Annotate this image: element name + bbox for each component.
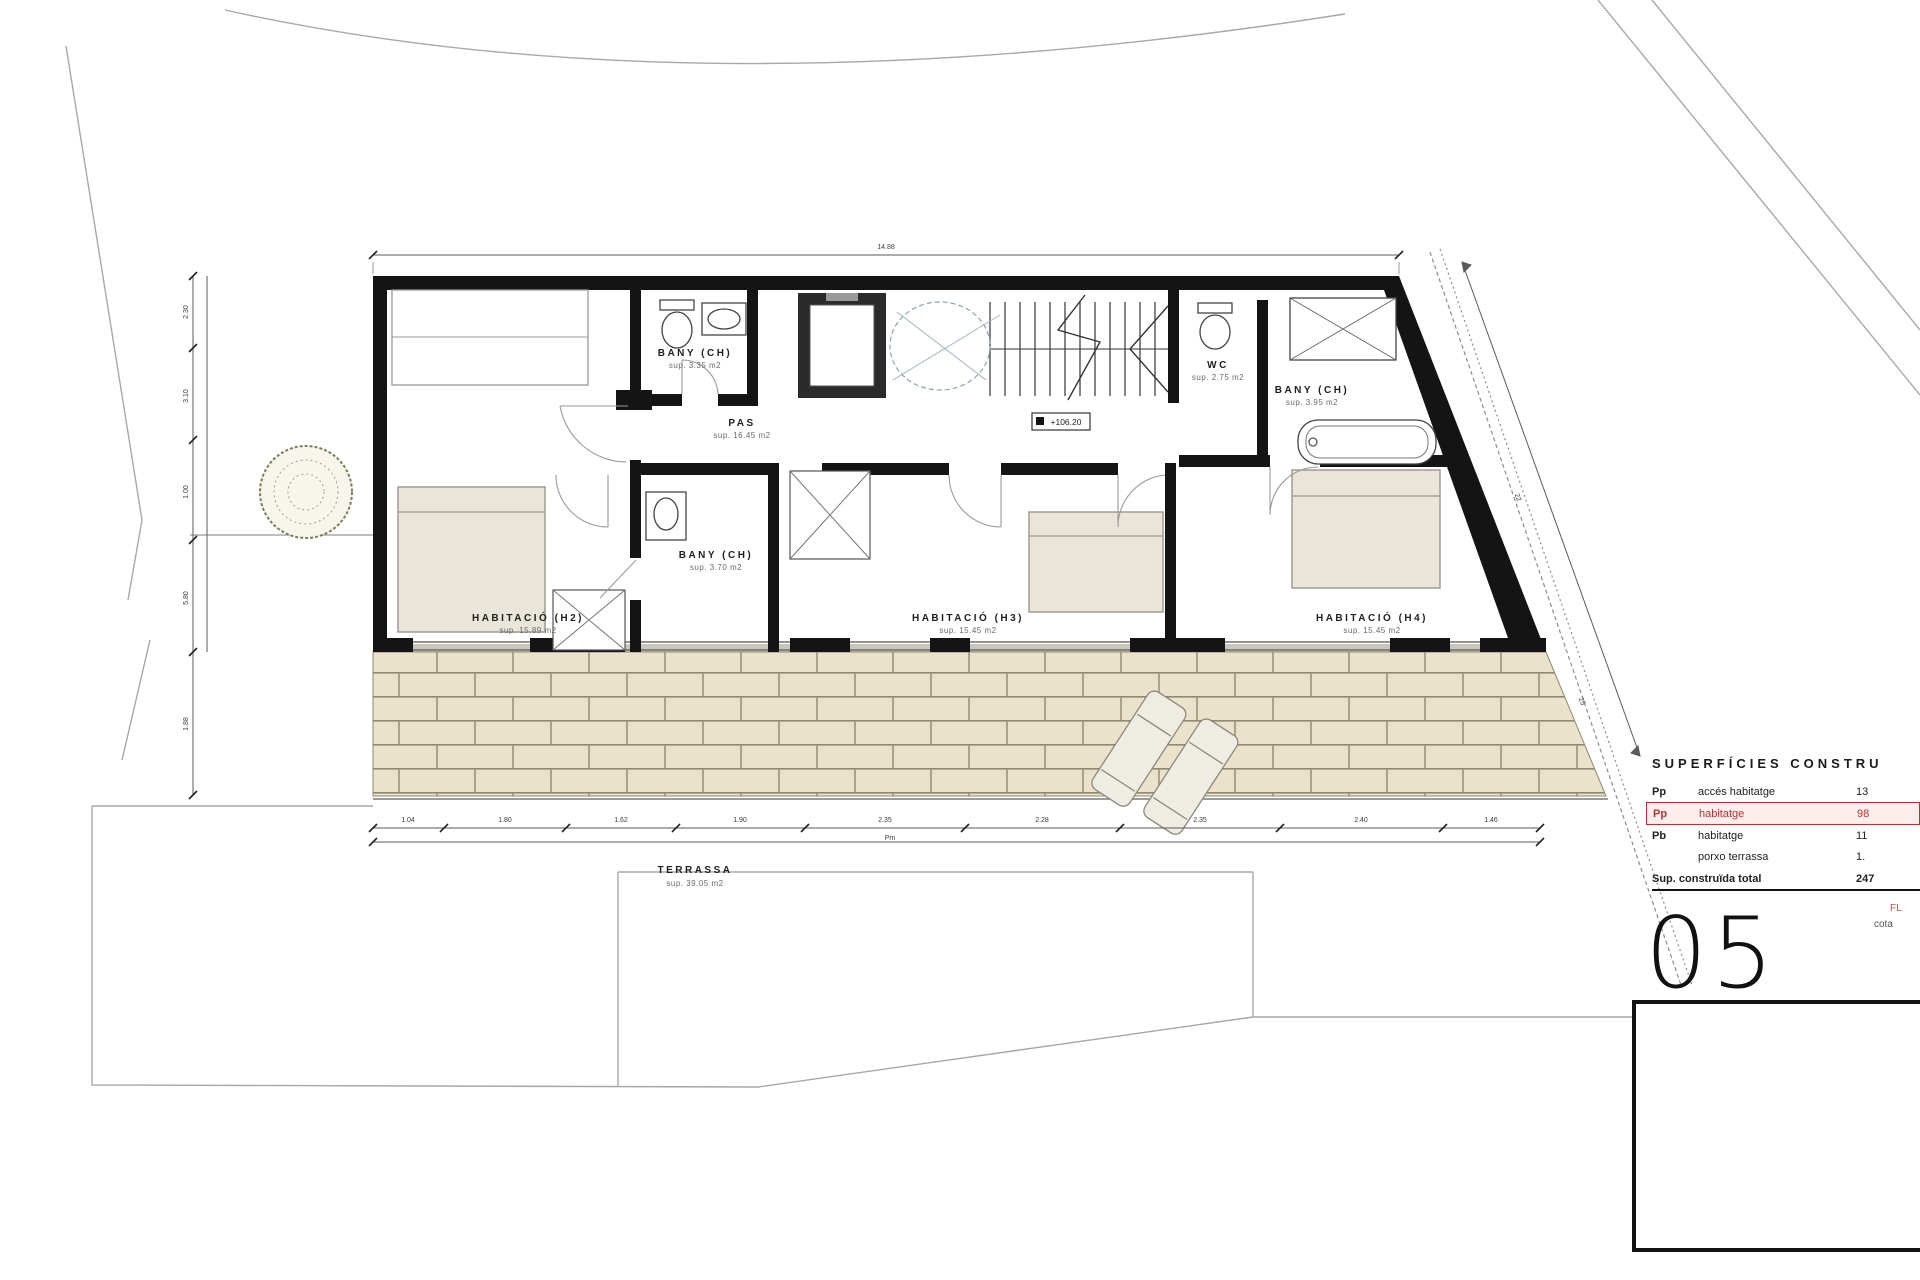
table-row-highlighted: Pp habitatge 98	[1646, 802, 1920, 825]
table-row: Pp accés habitatge 13	[1652, 781, 1920, 802]
dim-bottom-4: 2.35	[878, 817, 892, 824]
room-label-pas: PAS	[728, 418, 755, 429]
room-sup-pas: sup. 16.45 m2	[713, 431, 770, 440]
room-sup-h4: sup. 15.45 m2	[1343, 626, 1400, 635]
row-value: 11	[1856, 830, 1867, 842]
terrace-paving	[373, 652, 1606, 796]
room-sup-h2: sup. 15.89 m2	[499, 626, 556, 635]
room-sup-bany3: sup. 3.95 m2	[1286, 398, 1338, 407]
room-label-h4: HABITACIÓ (H4)	[1316, 611, 1428, 624]
dim-bottom-5: 2.28	[1035, 817, 1049, 824]
row-value: 98	[1857, 808, 1869, 820]
room-sup-terrassa: sup. 39.05 m2	[666, 879, 723, 888]
row-value: 1.	[1856, 851, 1865, 863]
tree	[260, 446, 352, 538]
room-label-h3: HABITACIÓ (H3)	[912, 611, 1024, 624]
room-label-bany3: BANY (CH)	[1275, 385, 1350, 396]
dim-top-span: 14.88	[877, 244, 895, 251]
staircase	[990, 295, 1168, 400]
total-value: 247	[1856, 873, 1874, 885]
dim-left-2: 1.00	[183, 485, 190, 499]
sheet-number: 05	[1645, 905, 1778, 1003]
row-label: habitatge	[1699, 808, 1857, 820]
room-sup-bany1: sup. 3.35 m2	[669, 361, 721, 370]
room-sup-h3: sup. 15.45 m2	[939, 626, 996, 635]
row-code: Pp	[1652, 786, 1698, 798]
dim-bottom-2: 1.62	[614, 817, 628, 824]
row-code: Pp	[1653, 808, 1699, 820]
dim-bottom-0: 1.04	[401, 817, 415, 824]
dim-bottom-overall: Pm	[885, 835, 896, 842]
table-total-row: Sup. construïda total 247	[1652, 873, 1920, 891]
row-label: porxo terrassa	[1698, 851, 1856, 863]
note-red-text: FL	[1890, 903, 1902, 914]
surface-summary-table: SUPERFÍCIES CONSTRU Pp accés habitatge 1…	[1652, 756, 1920, 891]
dim-bottom-6: 2.35	[1193, 817, 1207, 824]
dim-bottom-7: 2.40	[1354, 817, 1368, 824]
dim-left-1: 3.10	[183, 389, 190, 403]
row-label: habitatge	[1698, 830, 1856, 842]
elevation-value: +106.20	[1051, 417, 1082, 427]
room-label-bany1: BANY (CH)	[658, 348, 733, 359]
row-value: 13	[1856, 786, 1868, 798]
room-sup-bany2: sup. 3.70 m2	[690, 563, 742, 572]
elevator-shaft	[798, 293, 886, 398]
room-label-h2: HABITACIÓ (H2)	[472, 611, 584, 624]
dim-left-0: 2.30	[183, 305, 190, 319]
floor-plan-sheet: +106.20 BANY (CH) sup. 3.35 m2 PAS sup. …	[0, 0, 1920, 1280]
dim-bottom-8: 1.46	[1484, 817, 1498, 824]
note-gray-text: cota	[1874, 919, 1893, 930]
title-block-box	[1632, 1000, 1920, 1252]
room-label-wc: WC	[1207, 360, 1229, 371]
table-title: SUPERFÍCIES CONSTRU	[1652, 756, 1920, 771]
row-code: Pb	[1652, 830, 1698, 842]
table-row: porxo terrassa 1.	[1652, 846, 1920, 867]
dim-left-3: 5.80	[183, 591, 190, 605]
room-label-bany2: BANY (CH)	[679, 550, 754, 561]
turning-circle	[890, 302, 1000, 390]
elevation-marker: +106.20	[1032, 413, 1090, 430]
site-boundary-lines	[66, 0, 1920, 1087]
room-sup-wc: sup. 2.75 m2	[1192, 373, 1244, 382]
table-row: Pb habitatge 11	[1652, 825, 1920, 846]
dim-left-4: 1.88	[183, 717, 190, 731]
room-label-terrassa: TERRASSA	[657, 865, 732, 876]
total-label: Sup. construïda total	[1652, 873, 1856, 885]
dim-bottom-3: 1.90	[733, 817, 747, 824]
dim-slope-0: 22	[1513, 493, 1522, 503]
row-label: accés habitatge	[1698, 786, 1856, 798]
dim-bottom-1: 1.80	[498, 817, 512, 824]
